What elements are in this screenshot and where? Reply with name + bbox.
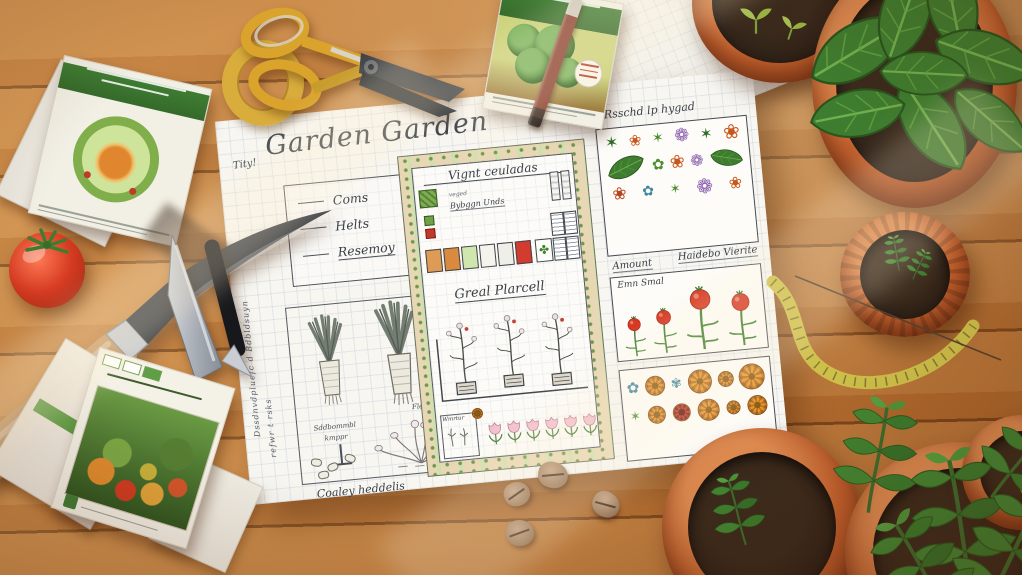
pen — [212, 247, 238, 349]
striped-swatch — [565, 235, 580, 259]
marigold-dot-icon — [471, 407, 483, 419]
color-swatch — [515, 240, 533, 264]
marigold-icon — [686, 368, 712, 394]
seed-packet-pile — [12, 348, 252, 575]
red-marigold-icon — [672, 403, 692, 423]
packet-header — [58, 62, 210, 121]
green-plot-icon — [418, 189, 438, 209]
tomato — [2, 222, 92, 310]
red-marker-icon — [425, 228, 436, 239]
scissors — [233, 3, 468, 121]
bed-plan: Vignt ceuladas veged Bybggn Unds ✤ Greal… — [411, 153, 601, 463]
companion-panel-title: Rsschd lp hygad — [603, 100, 695, 122]
star-flower-icon: ✶ — [604, 134, 619, 151]
star-flower-icon: ✶ — [699, 126, 713, 142]
blossom-icon: ❀ — [669, 153, 686, 172]
color-swatch — [425, 249, 443, 273]
aster-icon: ❁ — [695, 175, 714, 197]
marigold-icon — [717, 370, 734, 387]
blossom-icon: ❀ — [628, 132, 642, 148]
color-swatch — [461, 245, 479, 269]
leaf-icon — [707, 145, 746, 171]
flower-icon: ✿ — [642, 184, 655, 199]
tomato-plant-icon — [649, 305, 681, 355]
marigold-icon — [644, 375, 666, 397]
color-swatch — [443, 247, 461, 271]
amount-label: Amount — [612, 258, 653, 274]
color-swatch — [479, 243, 497, 267]
tomato-plant-icon — [620, 314, 650, 358]
star-flower-icon: ✶ — [629, 410, 641, 424]
plan-margin-note: Tity! — [232, 157, 257, 171]
blossom-icon: ❀ — [728, 175, 743, 192]
bed-plan-title: Vignt ceuladas — [422, 158, 563, 186]
flower-icon: ✿ — [651, 156, 665, 172]
marigold-icon — [647, 405, 667, 425]
striped-swatch — [563, 211, 578, 235]
star-flower-icon: ✶ — [651, 131, 664, 146]
tomato-plants-box: Emn Smal — [610, 263, 769, 362]
tomato-plant-icon — [679, 283, 725, 353]
bed-plan-note: veged — [449, 190, 468, 199]
plot-color-swatches — [425, 240, 533, 273]
blossom-icon: ❀ — [722, 121, 741, 143]
bed-plan-vine-frame: Vignt ceuladas veged Bybggn Unds ✤ Greal… — [397, 138, 615, 477]
blossom-icon: ❀ — [612, 185, 628, 203]
star-flower-icon: ✶ — [669, 182, 681, 196]
seed — [501, 478, 534, 509]
seed-dot-icon — [83, 171, 91, 179]
aster-icon: ❁ — [673, 126, 690, 145]
green-marker-icon — [424, 215, 435, 226]
garden-planning-scene: Tity! Garden Garden Flotweve Coms Helts … — [0, 0, 1022, 575]
plant-leaf — [874, 43, 974, 106]
packet-subtitle-squiggle — [101, 79, 169, 96]
seed — [505, 519, 535, 547]
bud-icon: ✾ — [670, 377, 682, 391]
bed-plan-note: Bybggn Unds — [450, 196, 505, 211]
clover-swatch-icon: ✤ — [535, 238, 554, 263]
striped-bar-icon — [560, 170, 572, 200]
marigold-icon — [726, 400, 741, 415]
staked-plants-sketch — [428, 297, 595, 412]
leaf-icon — [602, 148, 650, 188]
tiny-sprout-sketch — [443, 420, 475, 449]
brand-logo — [63, 494, 79, 510]
seed — [588, 487, 625, 523]
marigold-icon — [697, 398, 721, 422]
color-swatch — [497, 242, 515, 266]
flower-icon: ✿ — [626, 380, 640, 396]
striped-bar-icon — [549, 171, 561, 201]
packet-title-squiggle — [525, 0, 601, 9]
tomato-plant-row — [616, 279, 764, 358]
companion-flower-grid: ✶ ❀ ✶ ❁ ✶ ❀ ✿ ❀ ❁ ❀ ✿ ✶ ❁ ❀ — [595, 115, 759, 257]
tulip-note-box: Wmrtur — [440, 412, 480, 459]
aster-icon: ❁ — [689, 152, 704, 169]
bed-section-label: Greal Plarcell — [454, 279, 546, 304]
tulip-icon — [578, 400, 601, 446]
